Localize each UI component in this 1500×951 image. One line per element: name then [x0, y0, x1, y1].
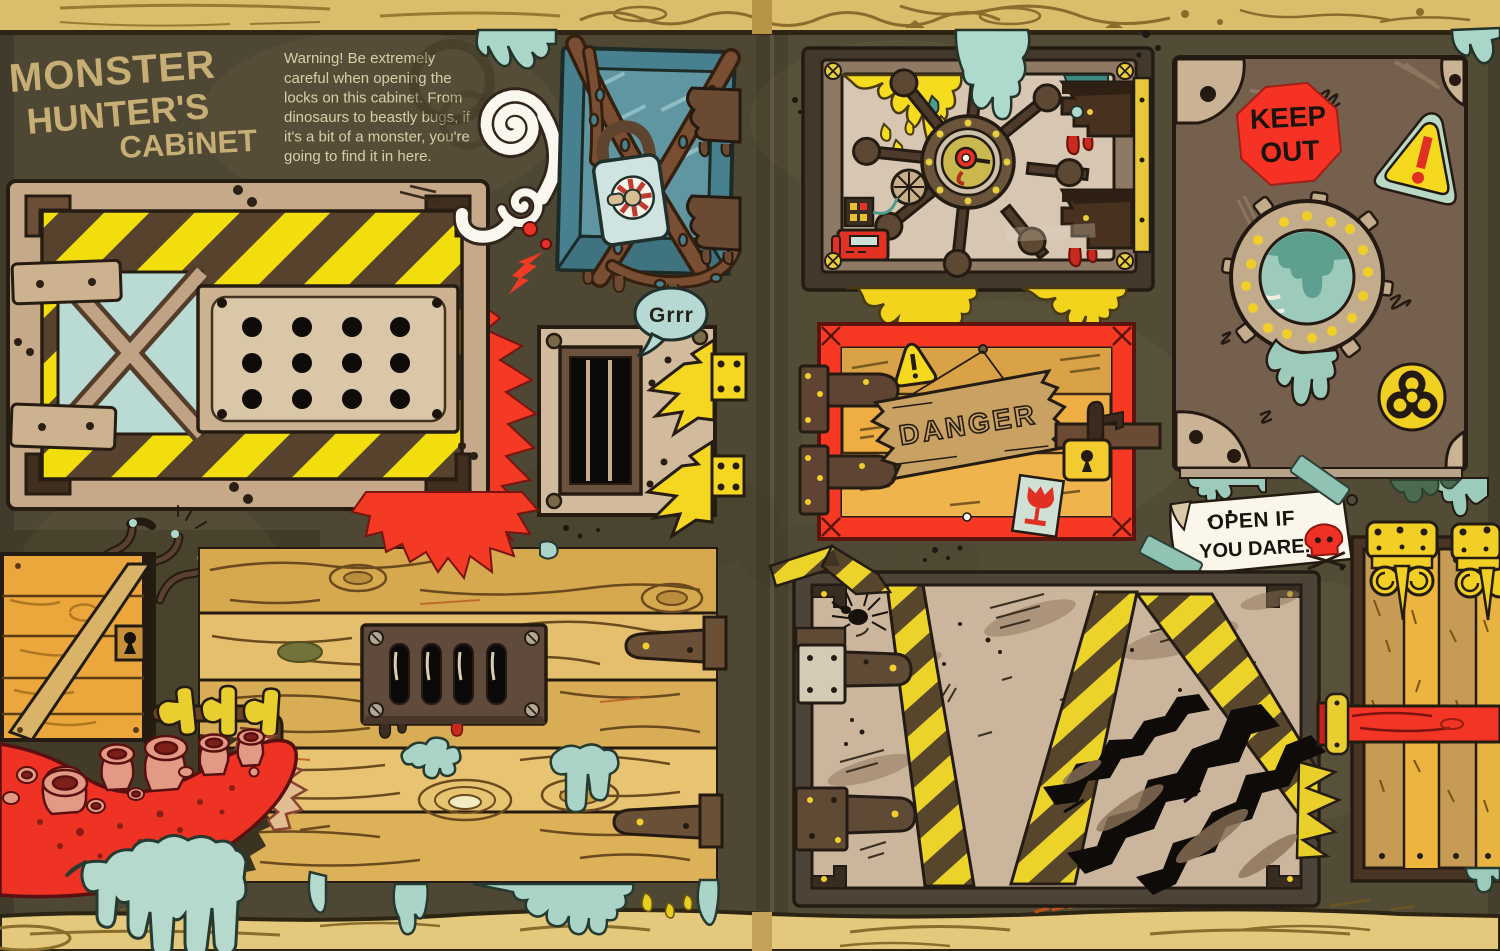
- svg-text:locks on this cabinet. From: locks on this cabinet. From: [284, 90, 462, 107]
- svg-text:CABiNET: CABiNET: [119, 123, 258, 165]
- svg-text:careful when opening the: careful when opening the: [284, 70, 452, 87]
- svg-text:OUT: OUT: [1260, 134, 1321, 168]
- svg-text:going to find it in here.: going to find it in here.: [284, 148, 432, 165]
- svg-text:OPEN IF: OPEN IF: [1207, 507, 1296, 535]
- svg-text:Grrr: Grrr: [649, 304, 694, 327]
- svg-text:KEEP: KEEP: [1249, 100, 1327, 135]
